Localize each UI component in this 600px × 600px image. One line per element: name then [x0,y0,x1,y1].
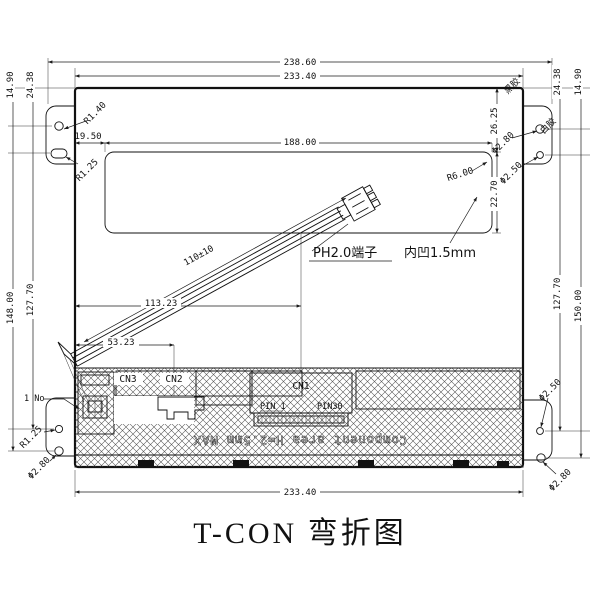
component-area-note: Component area H=2.5mm MAX [193,433,407,447]
black-glue-label: 黑胶 [501,75,522,96]
cn2-connector [114,396,204,424]
dim-left-c: 148.00 [6,292,16,325]
dim-left-a: 14.90 [6,71,16,98]
dim-cn2-pos: 53.23 [107,338,134,348]
annotation-texts: 黑胶 白胶 PH2.0端子 内凹1.5mm 1 No [24,75,558,404]
mounting-ear-bottom-left [46,398,75,456]
pin1-label: PIN 1 [260,402,286,412]
hole-d280-br [537,454,545,462]
slot-r125 [51,149,67,158]
drawing-svg: CN3 CN2 CN1 PIN 1 PIN30 Component area H… [0,0,600,600]
drawing-title: T-CON 弯折图 [193,517,406,550]
dim-left-d: 127.70 [26,284,36,317]
recess-note: 内凹1.5mm [404,245,476,261]
dim-win-offset: 19.50 [74,132,101,142]
inner-window [105,152,492,233]
dim-win-width: 188.00 [284,138,317,148]
cn2-label: CN2 [165,374,182,385]
dim-hole-d-br-b: Φ2.80 [547,467,573,493]
dim-top-outer: 238.60 [284,58,317,68]
dim-right-c: 127.70 [553,278,563,311]
dim-win-height: 22.70 [490,180,500,207]
cn3-label: CN3 [119,374,136,385]
dim-right-d: 150.00 [574,290,584,323]
pin30-label: PIN30 [317,402,343,412]
dim-bottom: 233.40 [284,488,317,498]
cn1-label: CN1 [292,381,309,392]
dim-hole-r-bl: R1.25 [18,424,44,450]
dim-hole-d-bl: Φ2.80 [26,455,52,481]
dim-hole-d-tr-b: Φ2.50 [498,160,524,186]
hole-r140 [55,122,63,130]
dim-hole-r-tl: R1.40 [82,100,108,126]
dim-top-inner: 233.40 [284,72,317,82]
dim-corner-r: R6.00 [446,166,475,184]
mounting-ear-top-right [523,106,552,164]
component-board: CN3 CN2 CN1 PIN 1 PIN30 Component area H… [75,368,523,467]
mounting-ear-top-left [46,106,75,164]
dim-win-top: 26.25 [490,107,500,134]
hole-d280-bl [55,447,63,455]
dim-right-a: 24.38 [553,68,563,95]
dim-right-b: 14.90 [574,68,584,95]
tcon-bending-drawing: CN3 CN2 CN1 PIN 1 PIN30 Component area H… [0,0,600,600]
hole-r125-bl [55,425,62,432]
dim-cn1-pos: 113.23 [145,299,178,309]
hole-d250-br [537,428,544,435]
ph20-terminal-note: PH2.0端子 [313,246,377,261]
dim-slot-r-tl: R1.25 [74,157,100,183]
ph20-connector [334,183,382,225]
dim-left-b: 24.38 [26,71,36,98]
pin1-number-note: 1 No [24,394,44,404]
dim-cable-length: 110±10 [182,244,215,268]
